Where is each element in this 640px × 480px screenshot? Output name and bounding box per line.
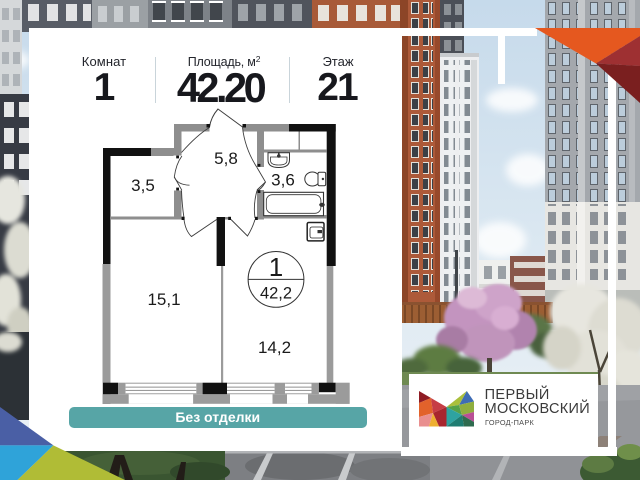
svg-text:15,1: 15,1 bbox=[147, 290, 180, 309]
svg-text:5,8: 5,8 bbox=[214, 149, 238, 168]
svg-text:14,2: 14,2 bbox=[258, 338, 291, 357]
svg-text:42,2: 42,2 bbox=[260, 285, 292, 303]
svg-text:3,5: 3,5 bbox=[131, 176, 155, 195]
svg-text:1: 1 bbox=[269, 252, 283, 282]
svg-text:3,6: 3,6 bbox=[271, 171, 295, 190]
